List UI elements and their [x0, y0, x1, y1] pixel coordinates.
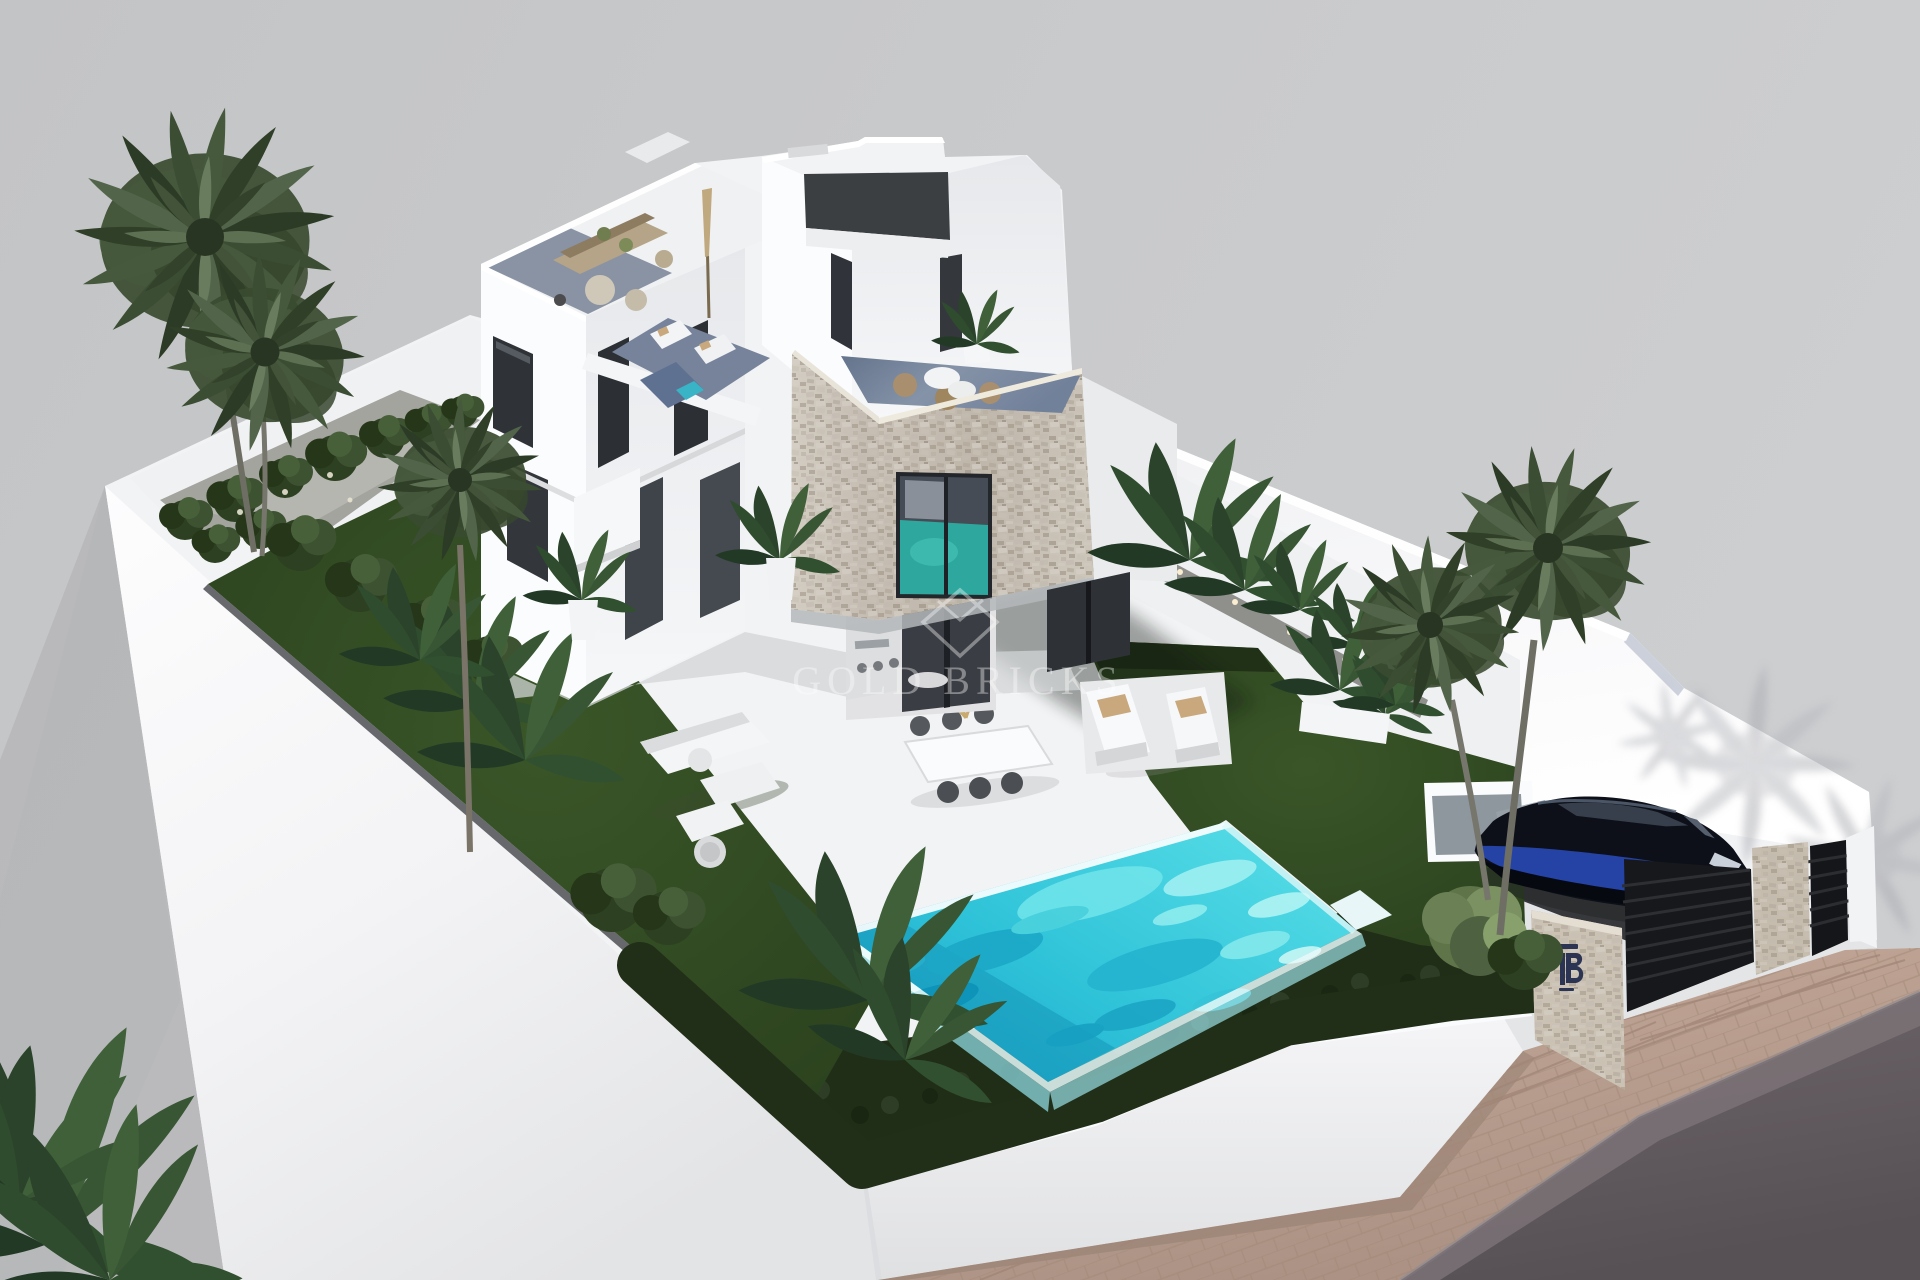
svg-text:GOLD BRICKS: GOLD BRICKS	[792, 658, 1124, 703]
